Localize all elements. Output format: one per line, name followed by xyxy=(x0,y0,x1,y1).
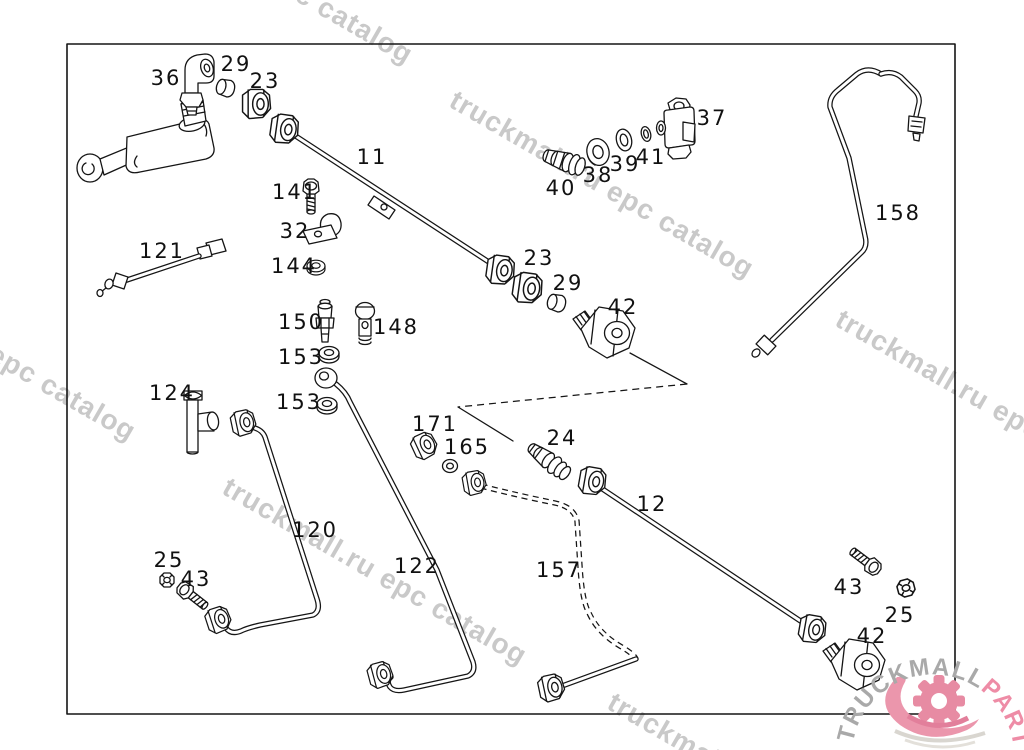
part-121-hose-drawing xyxy=(97,239,226,297)
part-25a-nut-drawing xyxy=(160,573,174,587)
part-38-nut-drawing xyxy=(584,136,612,168)
part-24-connector-drawing xyxy=(524,439,574,483)
part-150-valve-drawing xyxy=(316,300,334,343)
part-153a-washer-drawing xyxy=(319,347,339,364)
part-25b-nut-drawing xyxy=(896,578,917,599)
part-11-pipe-drawing xyxy=(269,113,516,286)
parts-catalog-page: truckmall.ru epc catalogtruckmall.ru epc… xyxy=(0,0,1024,750)
part-23b-nut-drawing xyxy=(511,271,544,305)
part-43b-bolt-drawing xyxy=(846,544,884,578)
part-29-plug-drawing xyxy=(215,77,237,98)
part-144-washer-drawing xyxy=(307,260,325,275)
part-43a-bolt-drawing xyxy=(174,579,211,613)
part-122-pipe-drawing xyxy=(315,368,474,691)
logo-text: TRUCKMALLPARTS xyxy=(0,0,1024,749)
part-12-pipe-drawing xyxy=(577,465,828,644)
part-157-pipe-drawing xyxy=(461,469,636,703)
part-40-fitting-drawing xyxy=(540,145,587,178)
part-29b-plug-drawing xyxy=(546,292,568,313)
part-42a-fitting-drawing xyxy=(573,307,635,358)
part-120-pipe-drawing xyxy=(203,408,318,635)
part-23-nut-drawing xyxy=(243,89,271,118)
part-148-screw-drawing xyxy=(356,303,375,345)
part-158-pipe-drawing xyxy=(750,70,925,359)
part-41-washer-drawing xyxy=(640,126,653,143)
part-39-washer-drawing xyxy=(614,128,634,153)
part-32-clamp-drawing xyxy=(303,214,341,244)
exploded-parts-diagram: TRUCKMALLPARTS xyxy=(0,0,1024,750)
part-171-nut-drawing xyxy=(408,430,440,462)
part-165-ring-drawing xyxy=(443,460,458,473)
part-141-bolt-drawing xyxy=(303,179,319,214)
leader-lines xyxy=(458,353,687,441)
part-36-elbow-drawing xyxy=(180,54,215,115)
truckmall-logo: TRUCKMALLPARTS xyxy=(0,0,1024,749)
part-153b-washer-drawing xyxy=(317,398,337,415)
part-37-valve-drawing xyxy=(657,98,696,159)
part-124-tfitting-drawing xyxy=(184,391,220,454)
